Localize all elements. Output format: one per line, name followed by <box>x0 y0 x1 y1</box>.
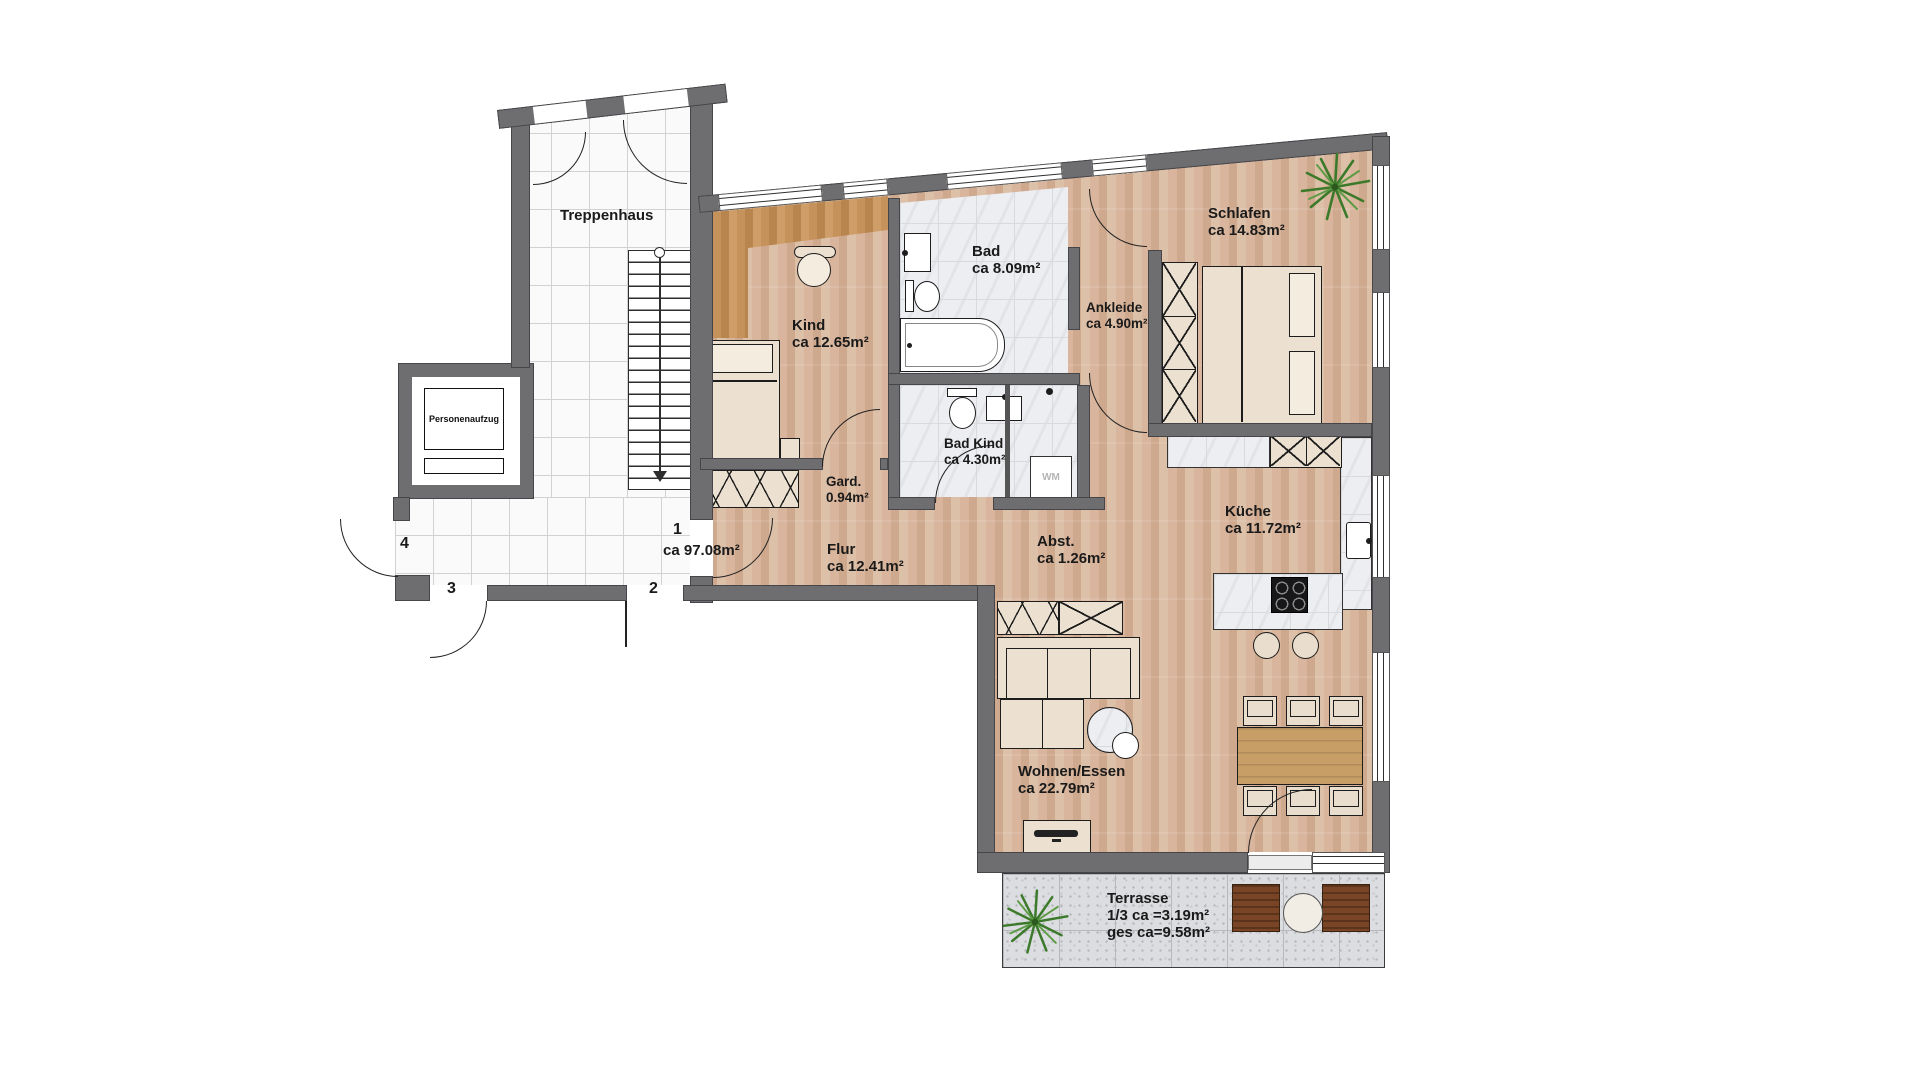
label-terrasse: Terrasse 1/3 ca =3.19m² ges ca=9.58m² <box>1107 890 1210 941</box>
room-name: Bad <box>972 243 1040 260</box>
desk-chair-seat <box>797 253 831 287</box>
wall-segment <box>1077 385 1090 507</box>
room-name: Küche <box>1225 503 1301 520</box>
wardrobe-x-icon <box>1163 316 1196 369</box>
terrace-chair <box>1232 884 1280 932</box>
wall-segment <box>487 585 627 601</box>
room-name: Kind <box>792 317 869 334</box>
wall-segment <box>993 497 1105 510</box>
kitchen-counter-top <box>1167 435 1270 468</box>
dining-chair <box>1286 696 1320 726</box>
wall-segment <box>880 458 888 470</box>
wall-segment <box>977 585 995 855</box>
pillow <box>1289 273 1315 337</box>
label-kind: Kind ca 12.65m² <box>792 317 869 351</box>
wardrobe-column <box>1162 262 1198 424</box>
tv-sideboard <box>1023 820 1091 853</box>
tv-icon <box>1034 830 1078 837</box>
terrace-chair <box>1322 884 1370 932</box>
wall-segment <box>977 852 1248 873</box>
double-bed <box>1202 266 1322 424</box>
wall-segment <box>888 373 1080 385</box>
room-area-partial: 1/3 ca =3.19m² <box>1107 907 1210 924</box>
sofa-chaise <box>1000 699 1084 749</box>
pillow <box>1289 351 1315 415</box>
wall-segment <box>888 497 935 510</box>
wall-segment <box>683 585 995 601</box>
label-door-2: 2 <box>649 580 658 597</box>
terrace-table <box>1283 893 1323 933</box>
room-area: ca 22.79m² <box>1018 780 1125 797</box>
terrace-window <box>1312 852 1385 873</box>
bar-stool <box>1292 632 1319 659</box>
bed-kind <box>703 340 780 468</box>
label-bad-kind: Bad Kind ca 4.30m² <box>944 436 1006 468</box>
label-gard: Gard. 0.94m² <box>826 474 869 506</box>
washing-machine-label: WM <box>1042 472 1060 483</box>
window <box>1372 652 1390 782</box>
cushion-divider <box>1042 700 1043 748</box>
tv-stand <box>1052 839 1061 842</box>
wall-segment <box>395 575 430 601</box>
toilet-tank <box>905 280 914 312</box>
entrance-hall-floor <box>395 497 690 585</box>
stair-start-circle <box>654 247 665 258</box>
wall-segment <box>1148 423 1372 437</box>
room-name: Terrasse <box>1107 890 1210 907</box>
door-leaf <box>625 601 627 647</box>
pillow <box>707 344 773 373</box>
room-area: ca 8.09m² <box>972 260 1040 277</box>
wall-right-exterior <box>1372 136 1390 873</box>
wall-segment <box>888 198 900 510</box>
faucet-icon <box>902 250 908 256</box>
wall-segment <box>1068 247 1080 330</box>
kitchen-sink <box>1346 522 1371 559</box>
label-unit-area: ca 97.08m² <box>663 542 740 559</box>
window <box>1372 475 1390 578</box>
stove <box>1271 577 1308 613</box>
wall-segment <box>690 88 713 520</box>
sink <box>986 396 1022 421</box>
room-name: Abst. <box>1037 533 1105 550</box>
side-table-small <box>1112 732 1139 759</box>
label-ankleide: Ankleide ca 4.90m² <box>1086 300 1148 332</box>
terrace-door-threshold <box>1248 855 1312 870</box>
label-flur: Flur ca 12.41m² <box>827 541 904 575</box>
faucet-icon <box>907 343 912 348</box>
wall-segment <box>393 497 410 521</box>
room-area: ca 4.90m² <box>1086 316 1148 332</box>
room-name: Flur <box>827 541 904 558</box>
gard-wardrobe <box>705 470 799 508</box>
floorplan-canvas: Personenaufzug <box>0 0 1920 1080</box>
sofa-back-row <box>997 637 1140 699</box>
room-area: ca 11.72m² <box>1225 520 1301 537</box>
cabinet-x-icon <box>1306 436 1340 466</box>
wardrobe-x-icon <box>1163 369 1196 422</box>
staircase <box>628 250 692 490</box>
door-arc <box>340 519 398 577</box>
elevator-label: Personenaufzug <box>429 414 499 424</box>
label-treppenhaus: Treppenhaus <box>560 207 653 224</box>
wall-segment <box>1148 250 1162 437</box>
blanket-line <box>704 380 777 382</box>
kitchen-wall-cabinet <box>1270 435 1342 468</box>
label-wohnen-essen: Wohnen/Essen ca 22.79m² <box>1018 763 1125 797</box>
room-name: Bad Kind <box>944 436 1006 452</box>
cabinet-x <box>1059 601 1123 635</box>
dining-chair <box>1329 696 1363 726</box>
label-door-4: 4 <box>400 535 409 552</box>
stair-guide-line <box>659 255 661 473</box>
window <box>1372 165 1390 250</box>
label-bad: Bad ca 8.09m² <box>972 243 1040 277</box>
stair-direction-arrow-icon <box>653 471 667 482</box>
sink <box>904 233 931 272</box>
room-name: Schlafen <box>1208 205 1285 222</box>
window <box>1372 292 1390 368</box>
dining-chair <box>1329 786 1363 816</box>
room-area: ca 4.30m² <box>944 452 1006 468</box>
shower-head-icon <box>1046 388 1053 395</box>
toilet-bowl <box>914 281 940 312</box>
door-arc <box>430 601 487 658</box>
wardrobe-x-icon <box>1163 263 1196 316</box>
washing-machine: WM <box>1030 456 1072 498</box>
room-name: Wohnen/Essen <box>1018 763 1125 780</box>
dining-table <box>1237 727 1363 785</box>
room-area: ca 12.65m² <box>792 334 869 351</box>
label-kueche: Küche ca 11.72m² <box>1225 503 1301 537</box>
toilet-tank <box>947 388 977 397</box>
label-abst: Abst. ca 1.26m² <box>1037 533 1105 567</box>
wall-segment <box>700 458 823 470</box>
elevator-door <box>424 458 504 474</box>
room-area: ca 12.41m² <box>827 558 904 575</box>
room-name: Gard. <box>826 474 869 490</box>
room-name: Ankleide <box>1086 300 1148 316</box>
toilet-bowl <box>949 397 976 429</box>
cushion-divider <box>1047 648 1048 698</box>
room-area: ca 14.83m² <box>1208 222 1285 239</box>
dining-chair <box>1243 696 1277 726</box>
sideboard-wardrobe <box>997 601 1059 635</box>
label-schlafen: Schlafen ca 14.83m² <box>1208 205 1285 239</box>
sofa-cushions <box>1006 648 1131 698</box>
room-area-total: ges ca=9.58m² <box>1107 924 1210 941</box>
wall-segment <box>511 118 530 368</box>
blanket-line <box>1241 267 1243 422</box>
room-area: 0.94m² <box>826 490 869 506</box>
shower-partition <box>1005 385 1010 497</box>
bar-stool <box>1253 632 1280 659</box>
room-area: ca 1.26m² <box>1037 550 1105 567</box>
bathtub <box>900 318 1005 372</box>
bathtub-inner <box>905 323 998 367</box>
label-door-3: 3 <box>447 580 456 597</box>
label-unit-number: 1 <box>673 521 682 538</box>
cushion-divider <box>1090 648 1091 698</box>
cabinet-x-icon <box>1271 436 1306 466</box>
elevator-cabin: Personenaufzug <box>424 388 504 450</box>
